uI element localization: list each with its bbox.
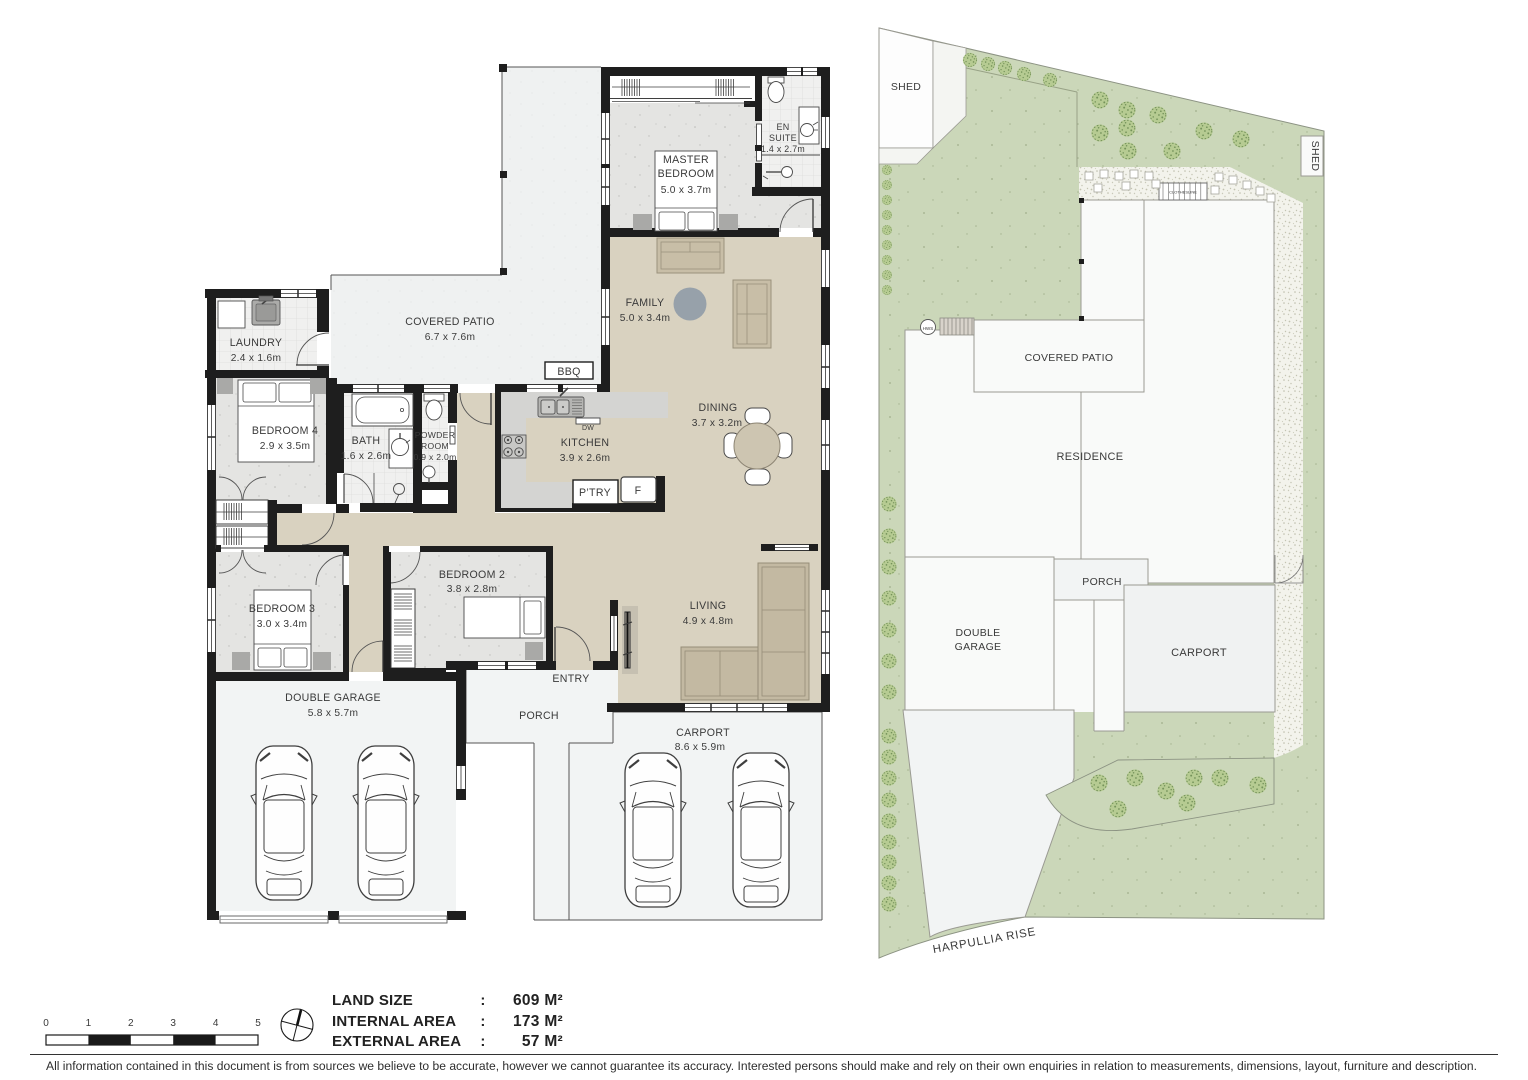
- svg-text::: :: [480, 1033, 485, 1050]
- svg-text:8.6 x 5.9m: 8.6 x 5.9m: [675, 742, 726, 753]
- svg-text:LAUNDRY: LAUNDRY: [230, 337, 283, 349]
- svg-text:F: F: [635, 485, 642, 497]
- svg-text:DOUBLE: DOUBLE: [956, 627, 1001, 639]
- svg-text:FAMILY: FAMILY: [626, 297, 665, 309]
- svg-text:RESIDENCE: RESIDENCE: [1057, 451, 1124, 463]
- svg-text:609 M²: 609 M²: [513, 992, 563, 1009]
- svg-text:5.8 x 5.7m: 5.8 x 5.7m: [308, 708, 359, 719]
- svg-text:All information contained in t: All information contained in this docume…: [46, 1059, 1477, 1073]
- svg-text:CLOTHESLINE: CLOTHESLINE: [1169, 190, 1197, 195]
- svg-text:1.4 x 2.7m: 1.4 x 2.7m: [761, 144, 805, 154]
- svg-text:LAND SIZE: LAND SIZE: [332, 992, 413, 1009]
- svg-text:POWDER: POWDER: [415, 430, 455, 440]
- svg-text:3.9 x 2.6m: 3.9 x 2.6m: [560, 453, 611, 464]
- svg-text:2: 2: [128, 1018, 134, 1029]
- svg-text:2.9 x 3.5m: 2.9 x 3.5m: [260, 441, 311, 452]
- svg-text:173 M²: 173 M²: [513, 1013, 563, 1030]
- svg-text:3.0 x 3.4m: 3.0 x 3.4m: [257, 619, 308, 630]
- svg-text:LIVING: LIVING: [690, 600, 727, 612]
- svg-text:1.6 x 2.6m: 1.6 x 2.6m: [341, 451, 392, 462]
- svg-text:P’TRY: P’TRY: [579, 487, 611, 499]
- svg-text:BEDROOM 4: BEDROOM 4: [252, 425, 318, 437]
- svg-text:SUITE: SUITE: [769, 133, 797, 143]
- svg-text:CARPORT: CARPORT: [1171, 647, 1227, 659]
- svg-text:SHED: SHED: [1309, 141, 1321, 172]
- svg-text:ENTRY: ENTRY: [552, 673, 589, 685]
- svg-text:ROOM: ROOM: [421, 441, 449, 451]
- svg-text:BEDROOM: BEDROOM: [658, 168, 715, 180]
- svg-text:COVERED PATIO: COVERED PATIO: [405, 316, 494, 328]
- svg-text:KITCHEN: KITCHEN: [561, 437, 610, 449]
- svg-text:0: 0: [43, 1018, 49, 1029]
- svg-text:3: 3: [170, 1018, 176, 1029]
- svg-text:DOUBLE GARAGE: DOUBLE GARAGE: [285, 692, 381, 704]
- svg-text:PORCH: PORCH: [519, 710, 559, 722]
- svg-text:CARPORT: CARPORT: [676, 727, 730, 739]
- svg-text:SHED: SHED: [891, 81, 921, 93]
- svg-text:EXTERNAL AREA: EXTERNAL AREA: [332, 1033, 461, 1050]
- svg-text:BBQ: BBQ: [557, 366, 580, 378]
- svg-text:COVERED PATIO: COVERED PATIO: [1025, 352, 1114, 364]
- svg-text:BATH: BATH: [352, 435, 381, 447]
- svg-text:6.7 x 7.6m: 6.7 x 7.6m: [425, 332, 476, 343]
- svg-text:3.7 x 3.2m: 3.7 x 3.2m: [692, 418, 743, 429]
- svg-text:5.0 x 3.4m: 5.0 x 3.4m: [620, 313, 671, 324]
- svg-text:2.4 x 1.6m: 2.4 x 1.6m: [231, 353, 282, 364]
- svg-text:DINING: DINING: [699, 402, 738, 414]
- svg-text:BEDROOM 3: BEDROOM 3: [249, 603, 315, 615]
- svg-text:GARAGE: GARAGE: [955, 641, 1002, 653]
- svg-text:DW: DW: [582, 425, 594, 432]
- svg-text:BEDROOM 2: BEDROOM 2: [439, 569, 505, 581]
- svg-text:5.0 x 3.7m: 5.0 x 3.7m: [661, 185, 712, 196]
- svg-text:HWS: HWS: [923, 326, 934, 331]
- svg-text:4: 4: [213, 1018, 219, 1029]
- svg-text::: :: [480, 992, 485, 1009]
- svg-text:0.9 x 2.0m: 0.9 x 2.0m: [413, 452, 456, 462]
- svg-text:3.8 x 2.8m: 3.8 x 2.8m: [447, 584, 498, 595]
- svg-text:1: 1: [86, 1018, 92, 1029]
- svg-text:57 M²: 57 M²: [522, 1033, 563, 1050]
- svg-text::: :: [480, 1013, 485, 1030]
- svg-text:INTERNAL AREA: INTERNAL AREA: [332, 1013, 456, 1030]
- svg-text:MASTER: MASTER: [663, 154, 709, 166]
- svg-text:PORCH: PORCH: [1082, 576, 1121, 588]
- svg-text:5: 5: [255, 1018, 261, 1029]
- svg-text:4.9 x 4.8m: 4.9 x 4.8m: [683, 616, 734, 627]
- svg-text:EN: EN: [776, 122, 789, 132]
